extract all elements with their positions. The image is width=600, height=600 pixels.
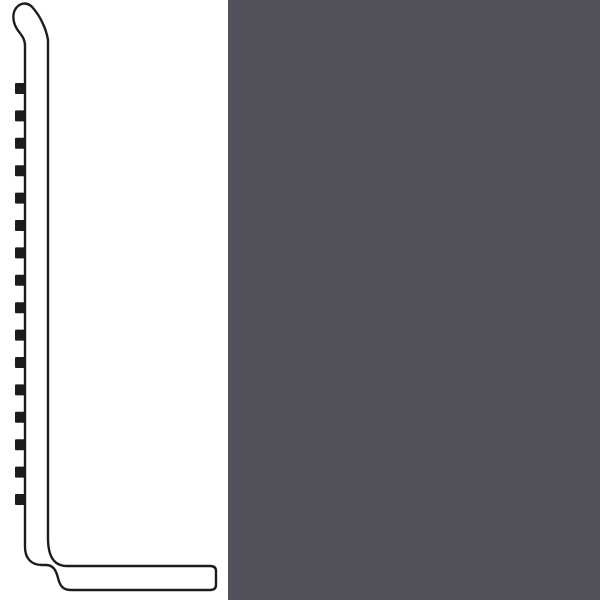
rib-tooth [15,193,26,204]
rib-tooth [15,165,26,176]
rib-tooth [15,439,26,450]
color-swatch [228,0,600,600]
rib-tooth [15,302,26,313]
rib-tooth [15,494,26,505]
rib-tooth [15,275,26,286]
rib-tooth [15,467,26,478]
rib-tooth [15,357,26,368]
rib-tooth [15,247,26,258]
rib-tooth [15,384,26,395]
molding-profile-outline [13,4,216,590]
rib-tooth [15,330,26,341]
rib-tooth [15,83,26,94]
rib-tooth [15,138,26,149]
product-image [0,0,600,600]
rib-tooth [15,220,26,231]
rib-tooth [15,412,26,423]
wall-base-profile-diagram [0,0,600,600]
rib-tooth [15,110,26,121]
